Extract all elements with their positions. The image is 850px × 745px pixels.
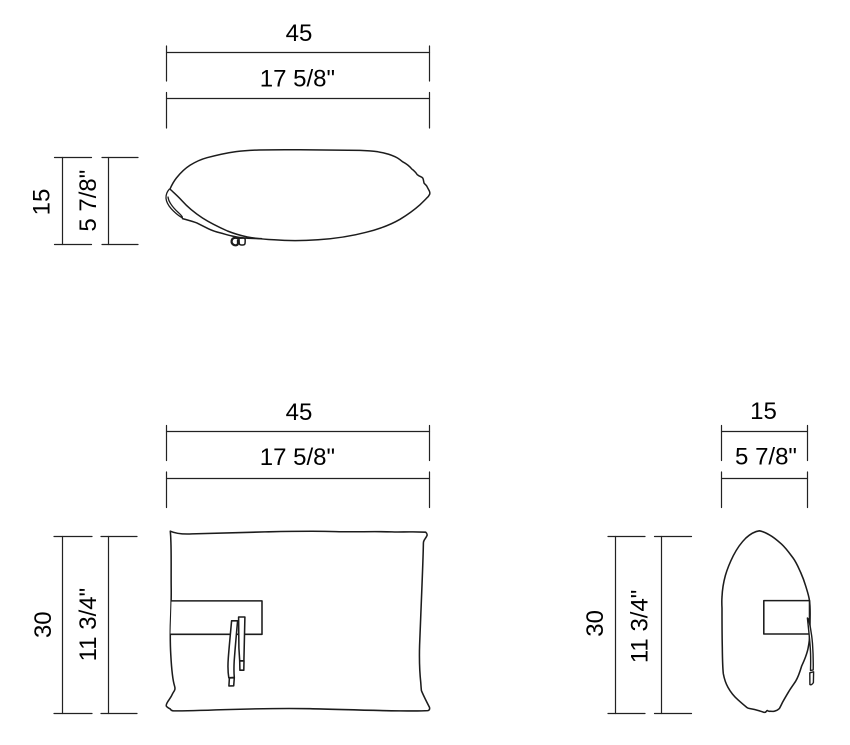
svg-text:5 7/8": 5 7/8"	[75, 170, 102, 232]
svg-text:45: 45	[286, 399, 313, 426]
svg-text:17 5/8": 17 5/8"	[260, 444, 335, 471]
svg-text:17 5/8": 17 5/8"	[260, 66, 335, 93]
svg-text:11 3/4": 11 3/4"	[626, 590, 653, 663]
svg-text:15: 15	[28, 189, 55, 216]
svg-text:30: 30	[30, 611, 57, 638]
svg-text:5 7/8": 5 7/8"	[735, 443, 797, 470]
svg-text:30: 30	[582, 610, 609, 637]
svg-text:15: 15	[750, 398, 777, 425]
svg-text:11 3/4": 11 3/4"	[75, 588, 102, 661]
svg-text:45: 45	[286, 20, 313, 47]
